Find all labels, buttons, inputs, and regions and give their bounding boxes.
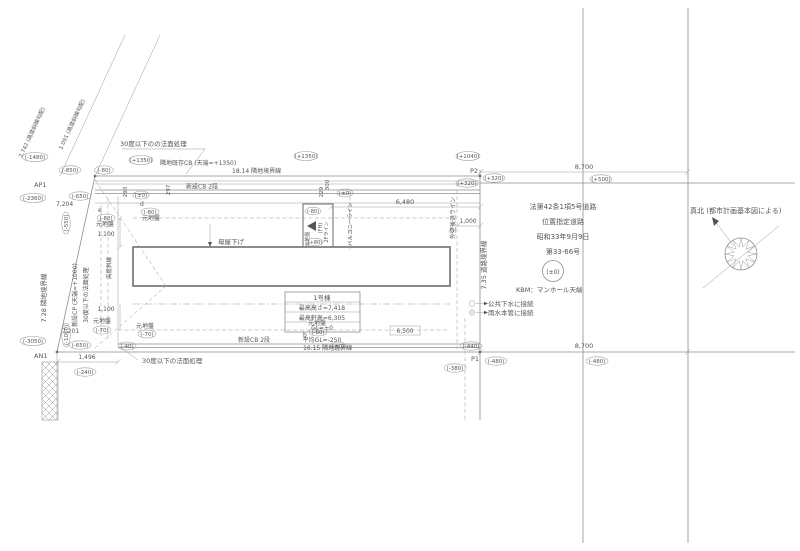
new-cp-label: 新設CP (天端=+1000) — [71, 263, 79, 327]
spot-level-+320-a: (+320) — [456, 179, 478, 187]
svg-text:(±0): (±0) — [135, 193, 147, 199]
new-cb-top-label: 新設CB 2段 — [186, 183, 218, 191]
spot-level-+80: (+80) — [307, 238, 323, 246]
svg-text:(-80): (-80) — [97, 168, 110, 174]
svg-text:(+80): (+80) — [308, 240, 323, 246]
spot-level--80-b: (-80) — [309, 328, 327, 336]
svg-text:(-70): (-70) — [95, 328, 108, 334]
building-eave-height: 最高軒高=6,305 — [299, 314, 345, 322]
spot-level--650-a: (-650) — [69, 192, 91, 200]
point-an1: AN1 — [34, 352, 47, 360]
svg-text:(+1350): (+1350) — [130, 158, 153, 164]
dim-293: 293 — [123, 186, 129, 197]
spot-level--3050: (-3050) — [20, 337, 46, 346]
spot-level-+320-b: (+320) — [483, 174, 505, 182]
spot-level--850: (-850) — [59, 166, 81, 174]
dim-7204: 7,204 — [56, 201, 73, 208]
height-slant-label: 高度斜線 — [105, 257, 113, 280]
svg-text:(-1050): (-1050) — [64, 325, 70, 345]
svg-text:(-480): (-480) — [589, 359, 606, 365]
orig-ground-f: 元地盤 — [93, 317, 111, 325]
dim-8700-top: 8,700 — [575, 163, 594, 171]
entrance-marker-icon — [307, 221, 316, 231]
svg-text:(-80): (-80) — [307, 209, 319, 215]
dim-6480: 6,480 — [396, 198, 415, 206]
dim-1100-bottom: 1,100 — [97, 306, 114, 313]
dim-8700-bottom: 8,700 — [575, 342, 594, 350]
building-outline — [133, 247, 450, 286]
slope-grade-label-1: 1.091 (高度斜線勾配) — [57, 98, 87, 151]
spot-level-+1350-b: (+1350) — [294, 152, 318, 161]
svg-text:(-850): (-850) — [62, 168, 79, 174]
orig-ground-a: 元地盤 — [136, 322, 154, 330]
spot-level--240: (-240) — [74, 368, 96, 376]
spot-level--480-b: (-480) — [586, 357, 608, 365]
spot-level-pm0-b: (±0) — [337, 189, 353, 197]
spot-level-pm0-c: (±0) — [330, 342, 346, 350]
dim-1496: 1,496 — [78, 354, 95, 361]
svg-text:(-70): (-70) — [140, 332, 153, 338]
road-law-line1: 法第42条1項5号道路 — [530, 202, 597, 211]
building-name: 1号棟 — [313, 293, 331, 302]
dim-297: 297 — [166, 184, 172, 195]
svg-text:(±0): (±0) — [332, 344, 344, 350]
svg-text:(-550): (-550) — [64, 215, 70, 232]
spot-level--650-b: (-650) — [69, 341, 91, 349]
spot-level-pm0-a: (±0) — [133, 191, 149, 199]
dim-1000: 1,000 — [459, 218, 476, 225]
road-lines — [478, 8, 795, 543]
dim-6500: 6,500 — [396, 328, 413, 335]
spot-level--1480: (-1480) — [22, 153, 48, 162]
existing-wall-hatch — [42, 362, 58, 420]
spot-level--70-a: (-70) — [138, 330, 156, 338]
svg-text:(-650): (-650) — [72, 194, 89, 200]
slope-grade-label-2: 2.742 (高度斜線勾配) — [17, 106, 47, 159]
spot-level--80-d: (-80) — [141, 208, 159, 216]
spot-level--480-a: (-480) — [485, 357, 507, 365]
spot-level--550: (-550) — [62, 212, 70, 234]
svg-text:(-3050): (-3050) — [23, 339, 43, 345]
svg-text:(-1480): (-1480) — [25, 155, 45, 161]
spot-level--80-top: (-80) — [95, 166, 114, 174]
legend-storm-label: 雨水本管に接続 — [488, 308, 534, 317]
slope-note-top: 30度以下のの法面処理 — [120, 139, 187, 148]
dim-1100-top: 1,100 — [97, 231, 114, 238]
building-max-height: 最高高さ=7,418 — [299, 304, 345, 312]
point-ap1: AP1 — [34, 181, 47, 189]
point-e: e — [98, 207, 102, 214]
kbm-label: KBM：マンホール天端 — [516, 285, 583, 294]
svg-text:(-380): (-380) — [447, 366, 464, 372]
north-compass — [703, 217, 779, 288]
spot-level-+500: (+500) — [590, 175, 612, 183]
svg-text:(±0): (±0) — [339, 191, 351, 197]
spot-level--1050: (-1050) — [62, 323, 70, 347]
storm-circle-icon — [469, 310, 475, 316]
spot-level--70-f: (-70) — [93, 326, 111, 334]
kbm-marker: (±0) — [543, 261, 564, 282]
north-arrow-icon — [712, 217, 719, 226]
road-law-line4: 第33-66号 — [546, 247, 580, 256]
point-p1: P1 — [471, 355, 479, 363]
svg-text:(+500): (+500) — [591, 177, 610, 183]
boundary-left-label: 7.28 隣地境界線 — [39, 273, 48, 323]
new-cb-bottom-label: 新設CB 2段 — [238, 336, 270, 344]
balcony-line-label: バルコニーライン — [347, 202, 354, 246]
spot-level--2360: (-2360) — [20, 194, 46, 203]
svg-text:(+320): (+320) — [484, 176, 503, 182]
spot-level-+1350-a: (+1350) — [129, 156, 153, 165]
svg-text:(+320): (+320) — [457, 181, 476, 187]
svg-text:(-240): (-240) — [77, 370, 94, 376]
svg-text:(-440): (-440) — [463, 344, 480, 350]
existing-cb-label: 隣地既存CB (天端=+1350) — [160, 159, 236, 167]
spot-level--380: (-380) — [444, 364, 466, 372]
road-boundary-label: 7.35 道路境界線 — [479, 240, 488, 290]
spot-level-+1040: (+1040) — [456, 152, 480, 161]
spot-level--80-c: (-80) — [305, 207, 321, 215]
svg-text:(-40): (-40) — [120, 344, 133, 350]
true-north-label: 真北 (都市計画基本図による) — [690, 206, 782, 215]
second-floor-line-label: 2Fライン — [324, 221, 330, 242]
slope-note-bottom: 30度以下の法面処理 — [142, 356, 203, 365]
road-law-line2: 位置指定道路 — [542, 217, 584, 226]
wall-setback-label: 外壁後退ライン — [449, 197, 457, 239]
sewer-circle-icon — [469, 301, 475, 307]
annotations: 30度以下のの法面処理 隣地既存CB (天端=+1350) 18.14 隣地境界… — [17, 98, 782, 365]
site-plan-drawing: 30度以下のの法面処理 隣地既存CB (天端=+1350) 18.14 隣地境界… — [0, 0, 800, 551]
legend-sewer-label: 公共下水に接続 — [488, 299, 534, 308]
svg-text:(-80): (-80) — [311, 330, 324, 336]
svg-text:(-80): (-80) — [99, 216, 112, 222]
boundary-top-label: 18.14 隣地境界線 — [232, 167, 281, 175]
svg-text:(+1040): (+1040) — [457, 154, 480, 160]
dim-229: 229 — [319, 186, 325, 197]
svg-text:(±0): (±0) — [546, 269, 560, 276]
svg-text:(-80): (-80) — [143, 210, 156, 216]
svg-text:(-480): (-480) — [488, 359, 505, 365]
road-law-line3: 昭和33年9月9日 — [537, 232, 590, 241]
site-plan-page: 30度以下のの法面処理 隣地既存CB (天端=+1350) 18.14 隣地境界… — [0, 0, 800, 551]
dim-300: 300 — [325, 179, 331, 190]
spot-level--80-e: (-80) — [97, 214, 115, 222]
svg-text:(+1350): (+1350) — [295, 154, 318, 160]
point-p2: P2 — [470, 167, 478, 175]
utility-legend — [469, 301, 488, 316]
spot-level--440: (-440) — [460, 342, 482, 350]
svg-text:(-2360): (-2360) — [23, 196, 43, 202]
slope-note-left: 30度以下の法面処理 — [82, 267, 90, 323]
spot-level--40: (-40) — [118, 342, 136, 350]
purlin-lower-label: 母屋下げ — [218, 237, 245, 246]
svg-text:(-650): (-650) — [72, 343, 89, 349]
building-avg-gl: 平均GL=-250 — [303, 336, 342, 344]
point-d: d — [140, 201, 144, 208]
